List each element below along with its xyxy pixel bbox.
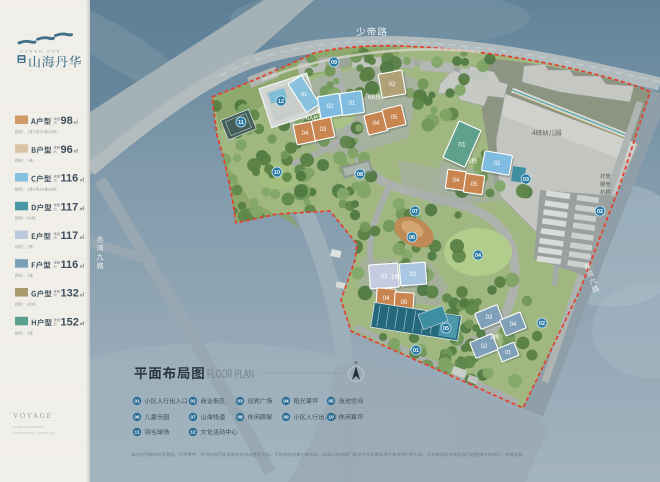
svg-text:02: 02 <box>539 321 545 327</box>
svg-text:05: 05 <box>401 300 408 306</box>
svg-text:07: 07 <box>412 209 418 215</box>
svg-text:01: 01 <box>301 92 307 98</box>
svg-text:YOUR DREAMERS: YOUR DREAMERS <box>13 425 44 429</box>
svg-text:01: 01 <box>413 348 419 354</box>
svg-text:09: 09 <box>331 60 337 66</box>
svg-text:08: 08 <box>357 172 363 178</box>
svg-text:OCEAN ONE: OCEAN ONE <box>20 50 61 54</box>
svg-text:10: 10 <box>274 170 280 176</box>
svg-text:09: 09 <box>283 415 289 421</box>
svg-text:07: 07 <box>190 415 196 421</box>
svg-text:02: 02 <box>494 161 501 167</box>
svg-text:96: 96 <box>61 144 73 156</box>
svg-text:04: 04 <box>383 296 390 302</box>
svg-text:11: 11 <box>238 120 244 126</box>
svg-text:02: 02 <box>597 209 603 215</box>
svg-text:116: 116 <box>61 173 79 185</box>
svg-text:08: 08 <box>237 415 243 421</box>
svg-text:04: 04 <box>475 253 481 259</box>
svg-text:03: 03 <box>320 127 327 133</box>
svg-text:116: 116 <box>61 259 79 271</box>
svg-text:10: 10 <box>328 415 334 421</box>
svg-text:02: 02 <box>389 82 396 88</box>
svg-text:117: 117 <box>61 201 79 213</box>
svg-text:05: 05 <box>328 399 334 405</box>
svg-text:04: 04 <box>510 322 517 328</box>
svg-text:VOYAGE: VOYAGE <box>13 412 53 420</box>
svg-text:05: 05 <box>471 182 478 188</box>
svg-text:01: 01 <box>458 141 466 148</box>
svg-text:01: 01 <box>505 350 511 356</box>
svg-text:152: 152 <box>61 316 79 328</box>
svg-text:WORLDWIDE LIFESTYLE: WORLDWIDE LIFESTYLE <box>13 431 55 435</box>
svg-text:03: 03 <box>381 274 388 280</box>
svg-text:06: 06 <box>134 415 140 421</box>
svg-text:02: 02 <box>410 272 417 278</box>
svg-text:FLOOR PLAN: FLOOR PLAN <box>207 369 254 381</box>
svg-text:04: 04 <box>283 399 289 405</box>
svg-text:11: 11 <box>134 430 139 436</box>
svg-text:04: 04 <box>302 131 309 137</box>
svg-text:01: 01 <box>349 101 356 107</box>
svg-text:12: 12 <box>190 430 196 436</box>
svg-text:117: 117 <box>61 230 79 242</box>
svg-text:03: 03 <box>486 315 493 321</box>
svg-text:01: 01 <box>134 399 140 405</box>
svg-text:04: 04 <box>453 178 460 184</box>
svg-text:132: 132 <box>61 288 79 300</box>
svg-text:98: 98 <box>61 115 73 127</box>
svg-text:03: 03 <box>523 177 529 183</box>
svg-text:02: 02 <box>190 399 196 405</box>
svg-text:04: 04 <box>373 121 380 127</box>
svg-text:06: 06 <box>409 235 415 241</box>
svg-text:03: 03 <box>237 399 243 405</box>
svg-text:N: N <box>354 360 357 365</box>
svg-text:02: 02 <box>481 344 488 350</box>
svg-text:12: 12 <box>278 99 284 105</box>
svg-text:05: 05 <box>443 326 449 332</box>
svg-text:02: 02 <box>327 104 334 110</box>
svg-text:05: 05 <box>391 115 398 121</box>
